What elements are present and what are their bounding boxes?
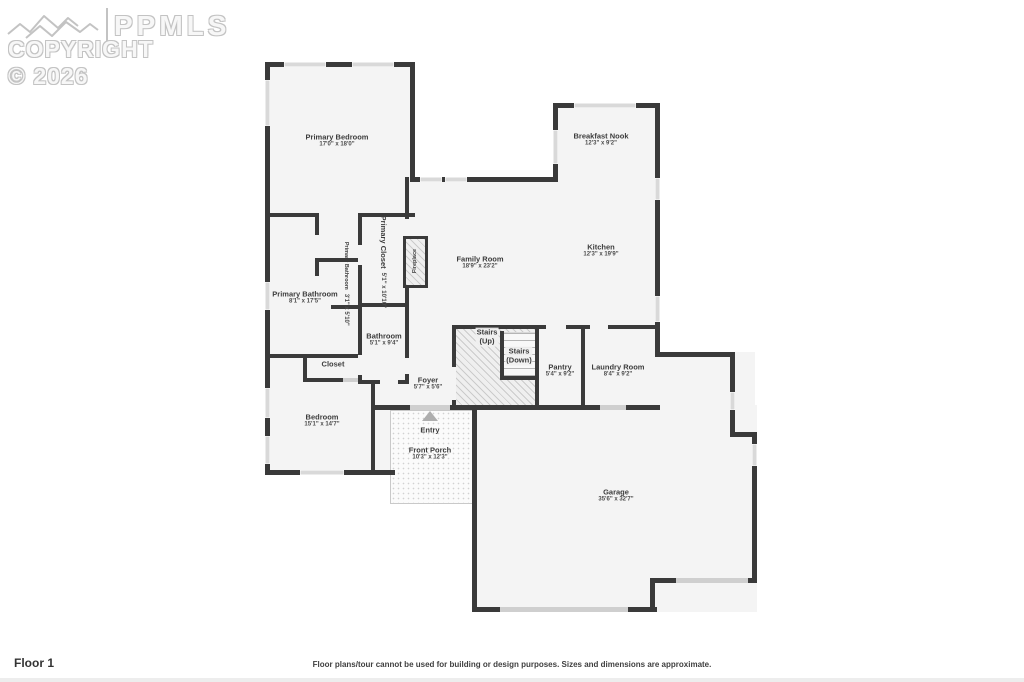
wall-segment <box>398 380 409 384</box>
room-dims: 10'3" x 12'3" <box>409 455 452 463</box>
room-label-laundry-room: Laundry Room 8'4" x 9'2" <box>592 363 645 380</box>
room-name: Stairs <box>506 347 531 356</box>
room-label-entry: Entry <box>420 425 439 434</box>
room-label-family-room: Family Room 18'9" x 23'2" <box>456 255 503 272</box>
door-opening <box>410 405 450 410</box>
room-name: Garage <box>598 488 633 497</box>
wall-segment <box>358 217 362 245</box>
room-name: Entry <box>420 425 439 434</box>
room-label-primary-bathroom-wc: Primary Bathroom 3'1" x 5'10" <box>336 242 356 326</box>
window <box>730 392 735 410</box>
door-opening <box>343 378 358 382</box>
room-dims: 5'1" x 9'4" <box>366 341 401 349</box>
room-name: Primary Bathroom <box>342 242 349 290</box>
window <box>420 177 442 182</box>
window <box>300 470 344 475</box>
room-dims: 12'3" x 19'9" <box>583 252 618 260</box>
wall-segment <box>410 62 415 181</box>
room-label-primary-closet: Primary Closet 5'1" x 10'10" <box>373 216 393 309</box>
room-dims: (Down) <box>506 356 531 365</box>
window <box>284 62 326 67</box>
wall-segment <box>608 325 660 329</box>
wall-segment <box>538 325 546 329</box>
room-label-front-porch: Front Porch 10'3" x 12'3" <box>409 446 452 463</box>
wall-segment <box>472 405 660 410</box>
wall-segment <box>265 354 358 358</box>
wall-segment <box>315 213 319 235</box>
wall-segment <box>581 325 585 409</box>
wall-segment <box>500 331 504 380</box>
room-label-closet: Closet <box>322 359 345 368</box>
bottom-divider <box>0 678 1024 682</box>
wall-segment <box>748 578 757 583</box>
room-label-stairs-down: Stairs (Down) <box>505 347 532 366</box>
room-fill <box>657 352 755 437</box>
wall-segment <box>371 405 410 410</box>
room-label-bedroom: Bedroom 15'1" x 14'7" <box>304 413 339 430</box>
room-name: Bedroom <box>304 413 339 422</box>
door-opening <box>676 578 748 583</box>
watermark-copyright: COPYRIGHT © 2026 <box>8 36 154 90</box>
room-name: Primary Closet <box>379 216 388 269</box>
wall-segment <box>452 400 456 410</box>
room-dims: 3'1" x 5'10" <box>342 294 350 326</box>
disclaimer-text: Floor plans/tour cannot be used for buil… <box>0 660 1024 669</box>
wall-segment <box>628 607 657 612</box>
window <box>352 62 394 67</box>
wall-segment <box>303 378 343 382</box>
entry-direction-icon <box>422 411 438 421</box>
room-dims: 18'9" x 23'2" <box>456 264 503 272</box>
wall-segment <box>315 258 319 276</box>
wall-segment <box>405 177 409 219</box>
room-label-garage: Garage 35'6" x 32'7" <box>598 488 633 505</box>
wall-segment <box>358 265 362 355</box>
door-opening <box>500 607 628 612</box>
room-name: Closet <box>322 359 345 368</box>
room-name: Primary Bedroom <box>306 133 369 142</box>
room-name: Pantry <box>546 363 575 372</box>
room-name: Family Room <box>456 255 503 264</box>
window <box>445 177 467 182</box>
wall-segment <box>535 325 539 409</box>
room-label-bathroom: Bathroom 5'1" x 9'4" <box>366 332 401 349</box>
room-label-kitchen: Kitchen 12'3" x 19'9" <box>583 243 618 260</box>
door-opening <box>600 405 626 410</box>
window <box>265 388 270 418</box>
room-label-foyer: Foyer 5'7" x 5'6" <box>414 376 443 393</box>
room-label-stairs-up: Stairs (Up) <box>476 328 499 347</box>
room-dims: 17'0" x 18'0" <box>306 142 369 150</box>
room-dims: (Up) <box>477 337 498 346</box>
room-label-breakfast-nook: Breakfast Nook 12'3" x 9'2" <box>573 132 628 149</box>
room-dims: 15'1" x 14'7" <box>304 422 339 430</box>
wall-segment <box>425 236 428 288</box>
room-dims: 5'7" x 5'6" <box>414 385 443 393</box>
room-name: Bathroom <box>366 332 401 341</box>
window <box>265 80 270 126</box>
room-label-fireplace: Fireplace <box>405 249 425 273</box>
room-label-primary-bedroom: Primary Bedroom 17'0" x 18'0" <box>306 133 369 150</box>
window <box>655 178 660 200</box>
room-name: Breakfast Nook <box>573 132 628 141</box>
room-dims: 5'1" x 10'10" <box>379 273 387 308</box>
room-name: Kitchen <box>583 243 618 252</box>
room-name: Front Porch <box>409 446 452 455</box>
room-dims: 35'6" x 32'7" <box>598 497 633 505</box>
room-label-primary-bathroom: Primary Bathroom 8'1" x 17'5" <box>272 290 337 307</box>
floor-plan: Primary Bedroom 17'0" x 18'0" Breakfast … <box>0 0 1024 682</box>
window <box>265 436 270 464</box>
wall-segment <box>566 325 590 329</box>
room-dims: 5'4" x 9'2" <box>546 372 575 380</box>
wall-segment <box>452 325 456 367</box>
room-dims: 8'1" x 17'5" <box>272 299 337 307</box>
wall-segment <box>358 380 380 384</box>
floor-plan-page: { "watermark": { "logo_text": "PPMLS", "… <box>0 0 1024 682</box>
wall-segment <box>405 303 409 358</box>
wall-segment <box>655 352 735 357</box>
wall-segment <box>472 410 477 612</box>
window <box>553 130 558 164</box>
wall-segment <box>500 376 539 380</box>
wall-segment <box>265 213 317 217</box>
room-name: Fireplace <box>412 249 419 273</box>
wall-segment <box>371 380 375 474</box>
room-name: Primary Bathroom <box>272 290 337 299</box>
room-name: Foyer <box>414 376 443 385</box>
room-dims: 8'4" x 9'2" <box>592 372 645 380</box>
window <box>574 103 636 108</box>
room-name: Laundry Room <box>592 363 645 372</box>
room-name: Stairs <box>477 328 498 337</box>
window <box>265 282 270 310</box>
window <box>655 296 660 322</box>
window <box>752 444 757 466</box>
room-label-pantry: Pantry 5'4" x 9'2" <box>546 363 575 380</box>
room-dims: 12'3" x 9'2" <box>573 141 628 149</box>
